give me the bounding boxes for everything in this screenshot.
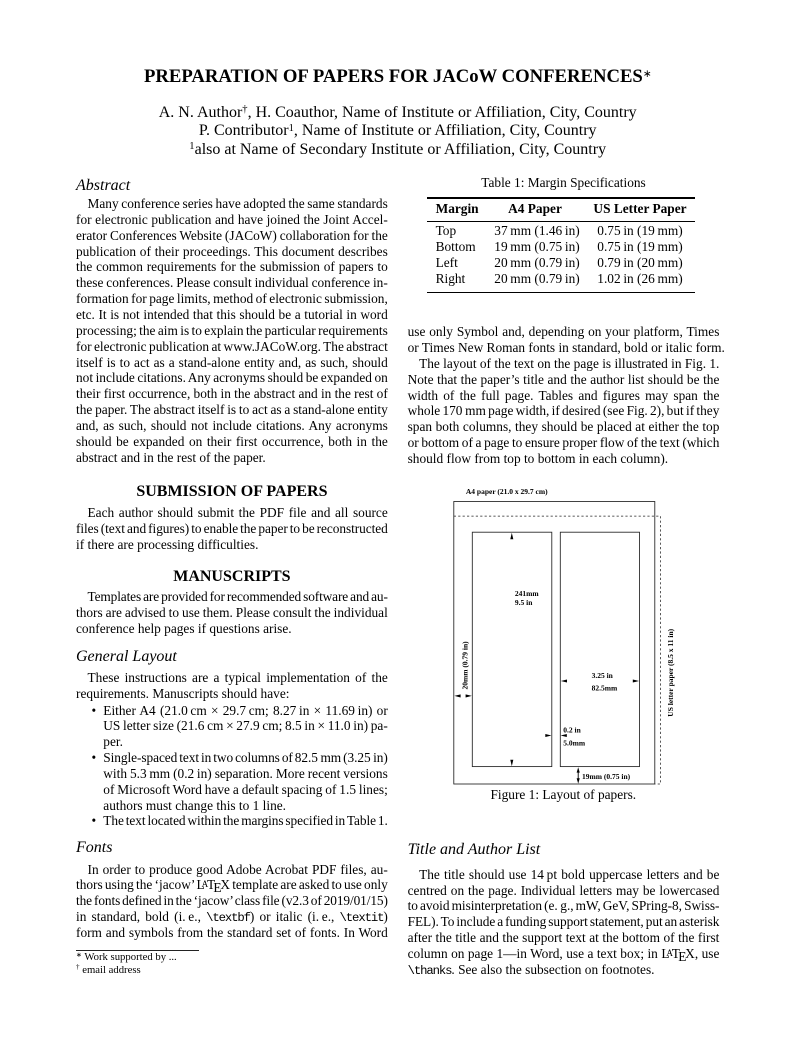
svg-text:5.0mm: 5.0mm	[563, 738, 586, 747]
svg-text:9.5 in: 9.5 in	[515, 598, 533, 607]
svg-text:19mm (0.75 in): 19mm (0.75 in)	[582, 772, 631, 781]
svg-text:82.5mm: 82.5mm	[592, 684, 618, 693]
svg-text:US letter paper (8.5 x 11 in): US letter paper (8.5 x 11 in)	[666, 628, 675, 716]
svg-text:241mm: 241mm	[515, 589, 539, 598]
svg-text:A4 paper (21.0 x 29.7 cm): A4 paper (21.0 x 29.7 cm)	[466, 487, 548, 496]
svg-text:3.25 in: 3.25 in	[592, 671, 614, 680]
svg-text:0.2 in: 0.2 in	[563, 725, 581, 734]
svg-text:20mm (0.79 in): 20mm (0.79 in)	[461, 641, 470, 690]
